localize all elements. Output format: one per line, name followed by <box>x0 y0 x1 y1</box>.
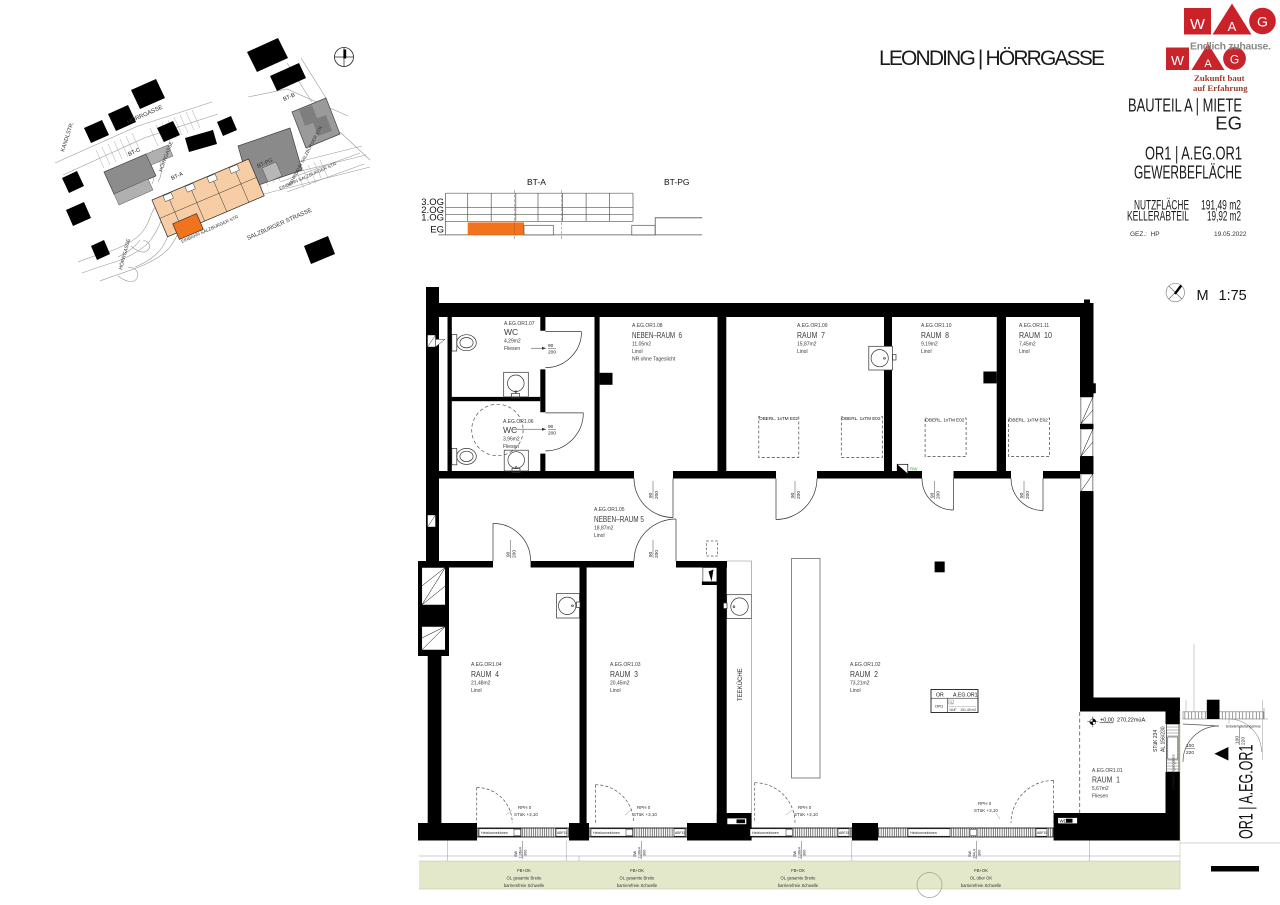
svg-text:RW: RW <box>910 467 918 472</box>
svg-text:OL über OK: OL über OK <box>970 876 993 881</box>
svg-text:BT-A: BT-A <box>527 177 546 187</box>
svg-text:Erdwärmeleitungsrinne: Erdwärmeleitungsrinne <box>1226 725 1261 729</box>
svg-text:OR1 | A.EG.OR1: OR1 | A.EG.OR1 <box>1236 745 1257 839</box>
svg-text:OR: OR <box>936 693 944 699</box>
svg-text:Linol: Linol <box>797 349 808 355</box>
svg-text:Linol: Linol <box>850 688 861 694</box>
svg-text:Endlich zuhause.: Endlich zuhause. <box>1190 41 1271 53</box>
svg-text:GEZ.: HP: GEZ.: HP <box>1130 231 1160 238</box>
svg-text:auf Erfahrung: auf Erfahrung <box>1193 83 1248 93</box>
svg-text:Heizkonvektoren: Heizkonvektoren <box>593 831 620 835</box>
svg-text:300: 300 <box>524 850 528 856</box>
svg-text:RAUM 1: RAUM 1 <box>1092 775 1120 785</box>
svg-text:RAUM 3: RAUM 3 <box>610 669 638 679</box>
svg-text:1,36x4: 1,36x4 <box>638 847 642 858</box>
svg-text:Linol: Linol <box>632 349 643 355</box>
svg-text:300: 300 <box>803 850 807 856</box>
svg-text:1,36x4: 1,36x4 <box>519 847 523 858</box>
svg-text:A: A <box>1204 58 1212 70</box>
svg-text:barrierefreie Schwelle: barrierefreie Schwelle <box>961 883 1002 888</box>
svg-text:A.EG.OR1.08: A.EG.OR1.08 <box>632 323 663 329</box>
svg-text:Gebäudeeingangstüre: Gebäudeeingangstüre <box>1172 754 1176 790</box>
svg-text:SW: SW <box>793 850 797 857</box>
svg-text:LEONDING | HÖRRGASSE: LEONDING | HÖRRGASSE <box>879 47 1105 70</box>
svg-text:RAUM 2: RAUM 2 <box>850 669 878 679</box>
svg-text:300: 300 <box>978 850 982 856</box>
svg-text:73,21m2: 73,21m2 <box>850 681 870 687</box>
svg-text:RPH 0: RPH 0 <box>518 805 532 810</box>
svg-text:7,45m2: 7,45m2 <box>1019 342 1036 348</box>
svg-text:A.EG.OR1.11: A.EG.OR1.11 <box>1019 323 1049 329</box>
svg-text:200: 200 <box>654 550 660 558</box>
svg-text:1.OG: 1.OG <box>421 213 444 224</box>
svg-text:A.EG.OR1.03: A.EG.OR1.03 <box>610 662 641 668</box>
svg-text:Fliesen: Fliesen <box>1092 794 1108 800</box>
svg-text:barrierefreie Schwelle: barrierefreie Schwelle <box>778 883 819 888</box>
svg-text:244,4: 244,4 <box>973 849 977 859</box>
svg-text:RAUM 7: RAUM 7 <box>797 330 825 340</box>
svg-text:barrierefreie Schwelle: barrierefreie Schwelle <box>617 883 658 888</box>
svg-text:Heizkonvektoren: Heizkonvektoren <box>910 831 937 835</box>
svg-text:M: M <box>1197 288 1209 304</box>
svg-text:FB+OK: FB+OK <box>974 868 988 873</box>
svg-text:Fliesen: Fliesen <box>504 346 520 352</box>
svg-text:200: 200 <box>512 550 518 558</box>
svg-text:19.05.2022: 19.05.2022 <box>1214 231 1247 238</box>
svg-text:5,67m2: 5,67m2 <box>1092 786 1109 792</box>
svg-text:Fliesen: Fliesen <box>503 444 519 450</box>
svg-text:1,36x4: 1,36x4 <box>798 847 802 858</box>
svg-text:G: G <box>1257 14 1268 30</box>
svg-text:ABF15: ABF15 <box>557 831 567 835</box>
svg-text:NUF 191,49 m2: NUF 191,49 m2 <box>950 708 977 712</box>
svg-text:OL gesamte Breite: OL gesamte Breite <box>781 876 817 881</box>
svg-text:EG: EG <box>430 225 444 236</box>
svg-text:FB+OK: FB+OK <box>791 868 805 873</box>
svg-text:Heizkonvektoren: Heizkonvektoren <box>481 831 508 835</box>
svg-text:FB+OK: FB+OK <box>630 868 644 873</box>
svg-text:A.EG.OR1.02: A.EG.OR1.02 <box>850 662 881 668</box>
svg-text:15,87m2: 15,87m2 <box>797 342 817 348</box>
svg-text:EG: EG <box>1215 113 1242 134</box>
svg-text:WC: WC <box>503 425 517 435</box>
svg-text:OBERL. 1xTM E02: OBERL. 1xTM E02 <box>759 416 798 422</box>
svg-text:220: 220 <box>1241 737 1247 745</box>
svg-text:Linol: Linol <box>610 688 621 694</box>
svg-text:RAUM 10: RAUM 10 <box>1019 330 1052 340</box>
svg-text:SW: SW <box>514 850 518 857</box>
svg-text:STüK +3,10: STüK +3,10 <box>974 808 998 813</box>
svg-text:NEBEN–RAUM 6: NEBEN–RAUM 6 <box>632 330 682 340</box>
svg-text:ABF15: ABF15 <box>675 831 685 835</box>
svg-text:ABF15: ABF15 <box>839 831 849 835</box>
svg-text:OL gesamte Breite: OL gesamte Breite <box>507 876 543 881</box>
svg-text:A.EG.OR1.01: A.EG.OR1.01 <box>1092 768 1123 774</box>
svg-text:A.EG.OR1.10: A.EG.OR1.10 <box>921 323 952 329</box>
svg-text:STüK +3,10: STüK +3,10 <box>633 812 657 817</box>
svg-text:FB+OK: FB+OK <box>517 868 531 873</box>
svg-text:200: 200 <box>936 491 942 499</box>
svg-text:GEWERBEFLÄCHE: GEWERBEFLÄCHE <box>1134 162 1242 183</box>
svg-text:A.EG.OR1.09: A.EG.OR1.09 <box>797 323 828 329</box>
svg-text:RAUM 8: RAUM 8 <box>921 330 949 340</box>
svg-text:AL 156/230: AL 156/230 <box>1161 726 1167 752</box>
svg-text:OL: OL <box>950 701 954 705</box>
svg-text:Heizkonvektoren: Heizkonvektoren <box>752 831 779 835</box>
svg-text:RPH 0: RPH 0 <box>978 801 992 806</box>
svg-text:ABF15: ABF15 <box>1037 831 1047 835</box>
svg-text:3,96m2: 3,96m2 <box>503 437 520 443</box>
svg-text:G: G <box>1230 53 1239 67</box>
svg-text:19,92 m2: 19,92 m2 <box>1207 209 1241 224</box>
svg-text:Linol: Linol <box>471 688 482 694</box>
svg-text:STüK +3,10: STüK +3,10 <box>794 812 818 817</box>
svg-text:BT-PG: BT-PG <box>664 177 690 187</box>
svg-text:OR1 | A.EG.OR1: OR1 | A.EG.OR1 <box>1145 143 1242 164</box>
svg-text:W: W <box>1171 54 1184 68</box>
svg-text:200: 200 <box>548 431 556 437</box>
svg-text:NR ohne Tageslicht: NR ohne Tageslicht <box>632 357 676 363</box>
svg-text:200: 200 <box>548 350 556 356</box>
svg-text:STüK +3,10: STüK +3,10 <box>514 812 538 817</box>
svg-text:TEEKÜCHE: TEEKÜCHE <box>737 668 744 701</box>
svg-text:SW: SW <box>633 850 637 857</box>
svg-text:OBERL. 1xTM E02: OBERL. 1xTM E02 <box>842 416 881 422</box>
svg-text:1:75: 1:75 <box>1219 288 1247 304</box>
svg-text:9,19m2: 9,19m2 <box>921 342 938 348</box>
svg-text:18,87m2: 18,87m2 <box>594 526 614 532</box>
svg-text:W: W <box>1190 16 1206 33</box>
svg-text:220: 220 <box>1186 750 1194 756</box>
svg-text:NEBEN–RAUM 5: NEBEN–RAUM 5 <box>594 514 644 524</box>
svg-text:RPH 0: RPH 0 <box>798 805 812 810</box>
svg-text:21,48m2: 21,48m2 <box>471 681 491 687</box>
svg-text:OR1: OR1 <box>935 704 944 709</box>
svg-text:Linol: Linol <box>921 349 932 355</box>
svg-text:11,05m2: 11,05m2 <box>632 342 651 348</box>
svg-text:RPH 0: RPH 0 <box>637 805 651 810</box>
svg-text:Linol: Linol <box>594 533 605 539</box>
svg-text:OL gesamte Breite: OL gesamte Breite <box>620 876 656 881</box>
svg-text:RAUM 4: RAUM 4 <box>471 669 499 679</box>
svg-text:barrierefreie Schwelle: barrierefreie Schwelle <box>504 883 545 888</box>
svg-text:Linol: Linol <box>1019 349 1030 355</box>
svg-text:A.EG.OR1.05: A.EG.OR1.05 <box>594 507 625 513</box>
svg-text:300: 300 <box>643 850 647 856</box>
svg-text:4,29m2: 4,29m2 <box>504 339 521 345</box>
svg-text:WC: WC <box>504 327 518 337</box>
svg-text:A.EG.OR1.04: A.EG.OR1.04 <box>471 662 502 668</box>
svg-text:20,45m2: 20,45m2 <box>610 681 630 687</box>
svg-text:Zukunft baut: Zukunft baut <box>1194 73 1245 83</box>
svg-text:200: 200 <box>654 491 660 499</box>
svg-text:200: 200 <box>796 491 802 499</box>
svg-text:OBERL. 1xTM E02: OBERL. 1xTM E02 <box>925 418 964 424</box>
svg-text:A.EG.OR1: A.EG.OR1 <box>953 693 978 699</box>
svg-text:A: A <box>1228 19 1237 34</box>
svg-text:STüK 234: STüK 234 <box>1153 730 1159 752</box>
svg-text:OBERL. 1xTM E02: OBERL. 1xTM E02 <box>1009 418 1048 424</box>
svg-text:SW: SW <box>968 850 972 857</box>
svg-text:270,22müA.: 270,22müA. <box>1117 718 1147 724</box>
svg-text:KELLERABTEIL: KELLERABTEIL <box>1127 209 1189 224</box>
svg-text:200: 200 <box>1025 491 1031 499</box>
